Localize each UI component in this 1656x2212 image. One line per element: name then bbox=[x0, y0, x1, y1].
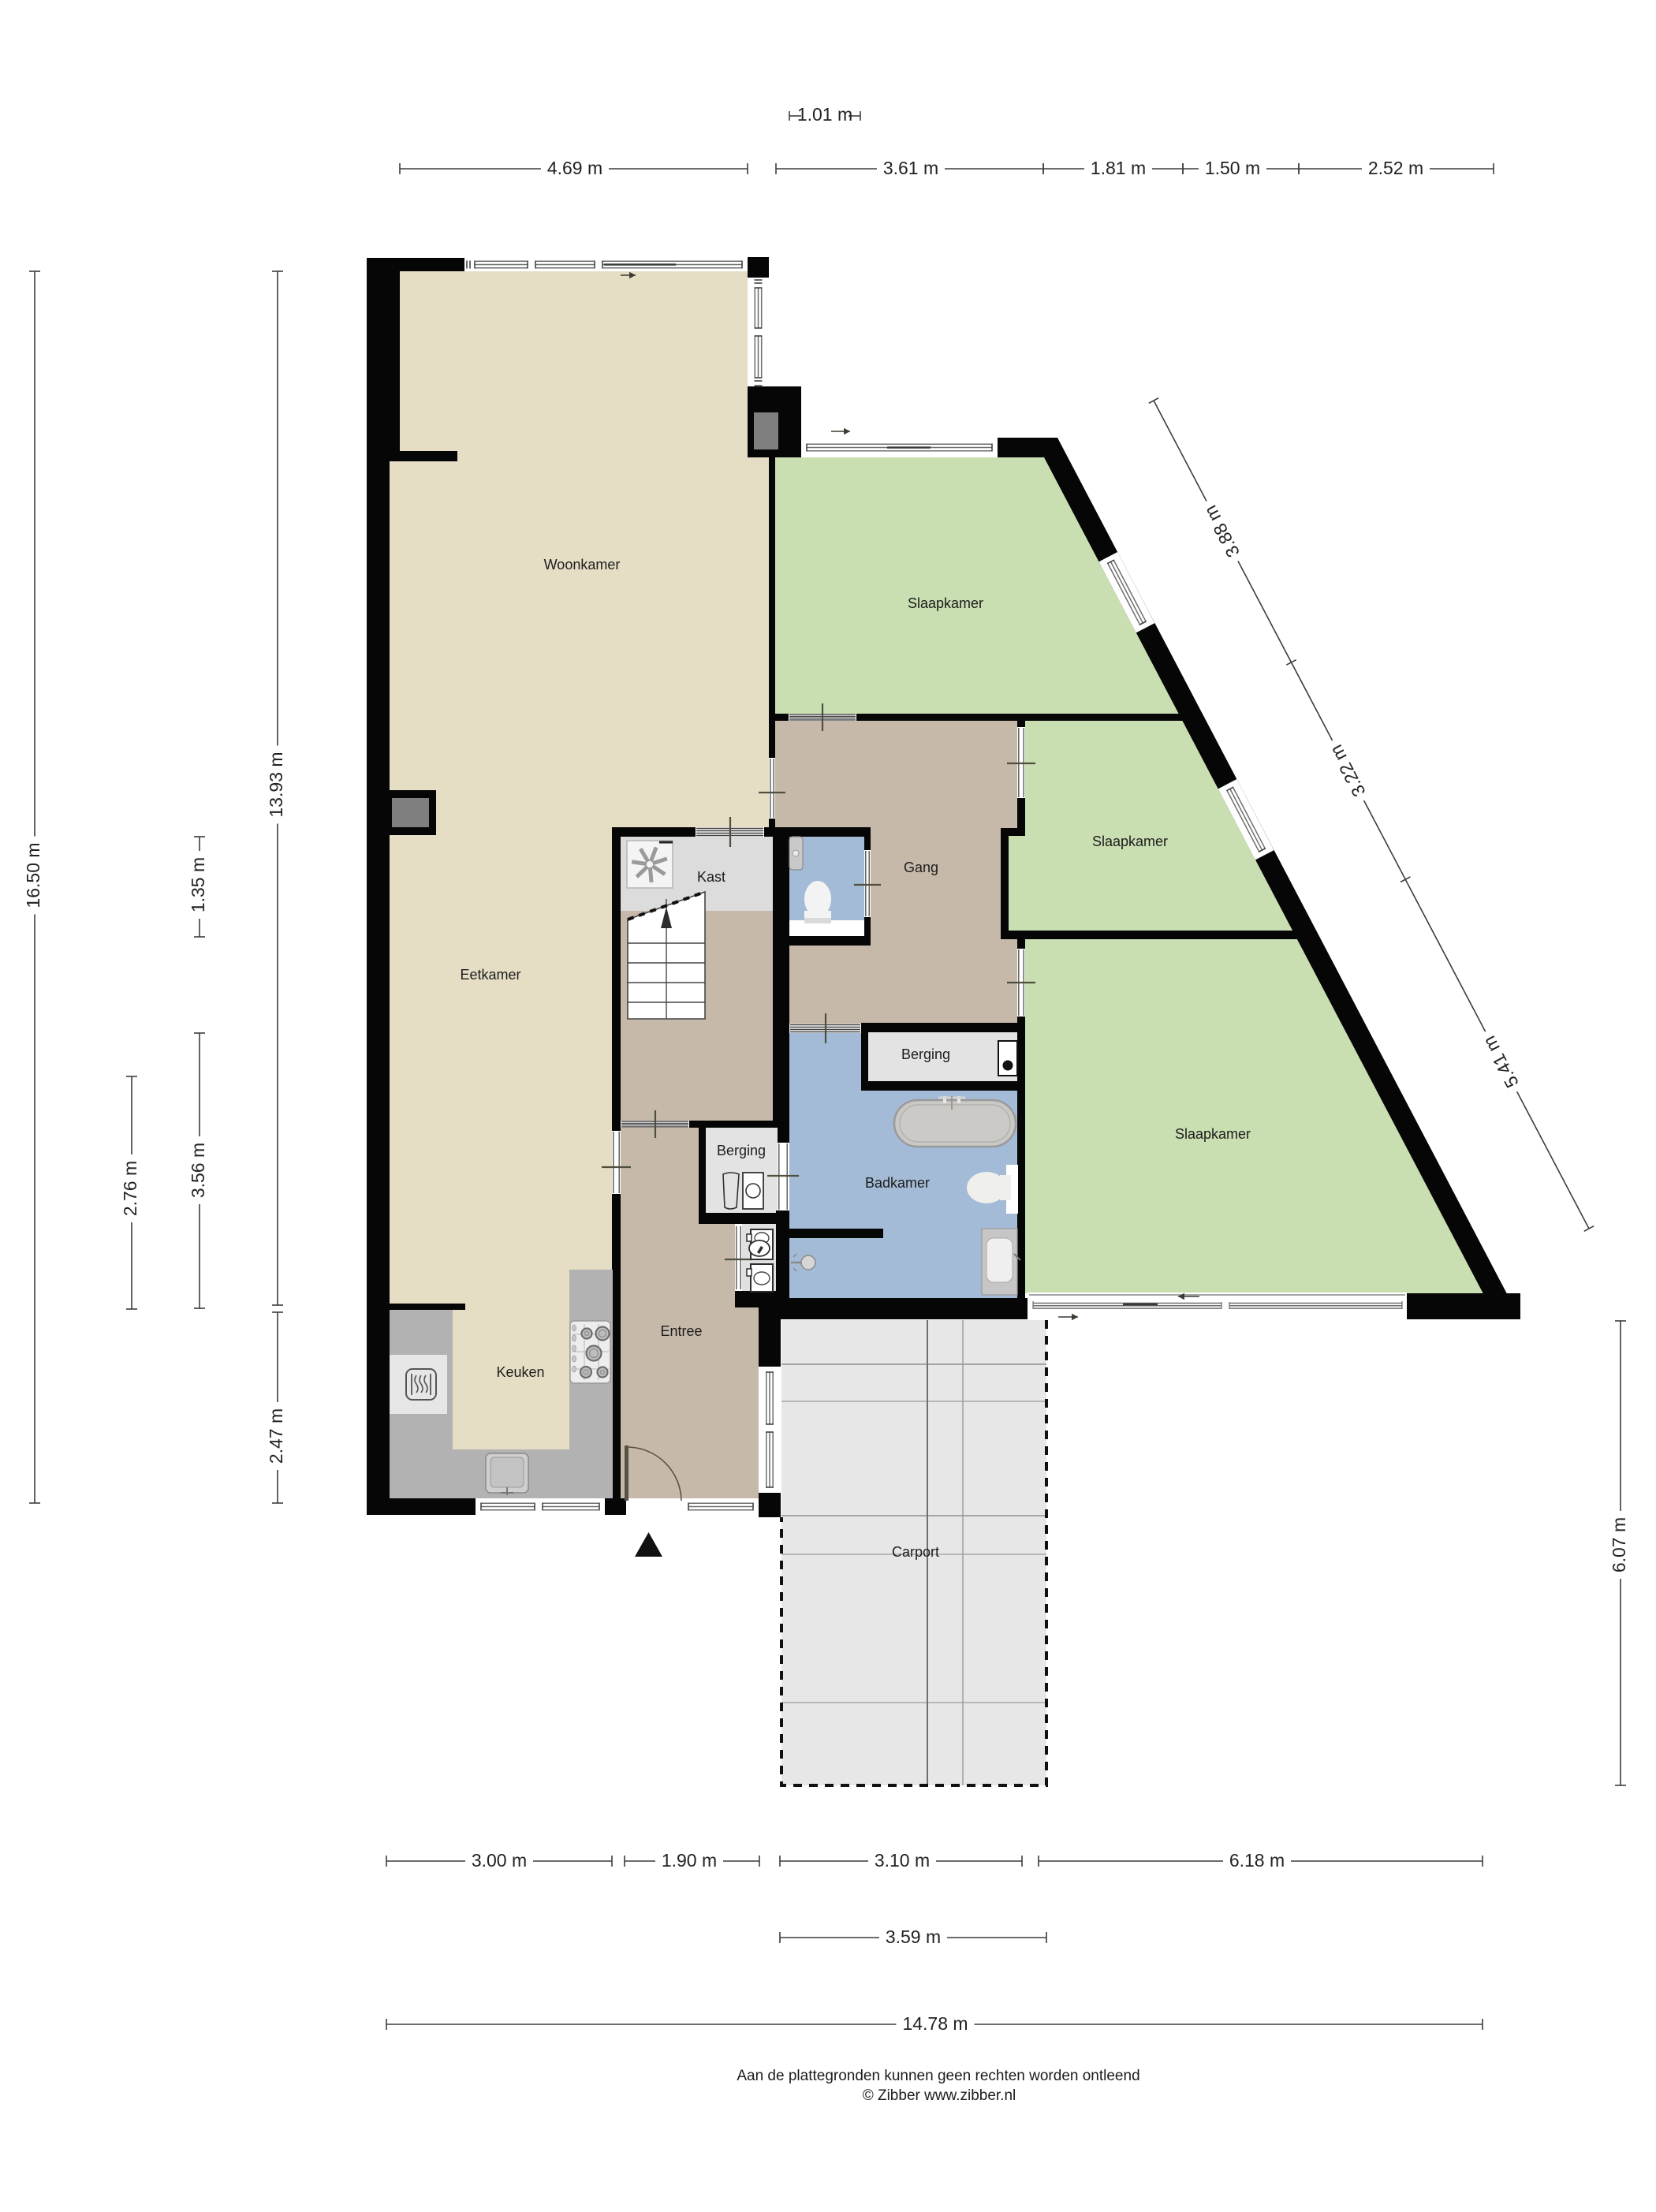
svg-text:Berging: Berging bbox=[901, 1046, 950, 1062]
svg-text:3.61 m: 3.61 m bbox=[883, 158, 938, 178]
svg-text:6.07 m: 6.07 m bbox=[1609, 1517, 1629, 1572]
svg-text:Kast: Kast bbox=[697, 869, 725, 885]
svg-text:1.01 m: 1.01 m bbox=[797, 104, 852, 125]
svg-text:2.52 m: 2.52 m bbox=[1368, 158, 1423, 178]
svg-text:1.90 m: 1.90 m bbox=[662, 1850, 717, 1871]
svg-text:3.56 m: 3.56 m bbox=[188, 1143, 208, 1198]
svg-text:14.78 m: 14.78 m bbox=[902, 2013, 968, 2034]
svg-text:16.50 m: 16.50 m bbox=[23, 842, 43, 908]
svg-text:6.18 m: 6.18 m bbox=[1229, 1850, 1285, 1871]
svg-text:© Zibber www.zibber.nl: © Zibber www.zibber.nl bbox=[863, 2087, 1016, 2104]
svg-text:Gang: Gang bbox=[904, 860, 938, 875]
svg-text:Aan de plattegronden kunnen ge: Aan de plattegronden kunnen geen rechten… bbox=[737, 2068, 1139, 2084]
svg-text:Slaapkamer: Slaapkamer bbox=[908, 595, 983, 611]
svg-text:1.35 m: 1.35 m bbox=[188, 857, 208, 912]
svg-text:Slaapkamer: Slaapkamer bbox=[1175, 1126, 1251, 1142]
svg-text:Carport: Carport bbox=[892, 1544, 939, 1560]
svg-text:13.93 m: 13.93 m bbox=[266, 752, 286, 817]
svg-text:Berging: Berging bbox=[717, 1143, 766, 1158]
svg-text:2.47 m: 2.47 m bbox=[266, 1408, 286, 1464]
svg-text:Keuken: Keuken bbox=[496, 1364, 544, 1380]
svg-text:1.81 m: 1.81 m bbox=[1091, 158, 1146, 178]
svg-text:Slaapkamer: Slaapkamer bbox=[1092, 834, 1168, 849]
svg-text:4.69 m: 4.69 m bbox=[547, 158, 602, 178]
svg-text:3.59 m: 3.59 m bbox=[886, 1927, 941, 1947]
svg-text:1.50 m: 1.50 m bbox=[1205, 158, 1260, 178]
svg-text:2.76 m: 2.76 m bbox=[120, 1161, 140, 1216]
svg-text:Entree: Entree bbox=[660, 1323, 702, 1339]
svg-text:3.10 m: 3.10 m bbox=[875, 1850, 930, 1871]
svg-text:Woonkamer: Woonkamer bbox=[544, 557, 621, 573]
svg-text:Badkamer: Badkamer bbox=[865, 1175, 930, 1191]
svg-text:3.00 m: 3.00 m bbox=[472, 1850, 527, 1871]
svg-text:Eetkamer: Eetkamer bbox=[460, 967, 520, 983]
